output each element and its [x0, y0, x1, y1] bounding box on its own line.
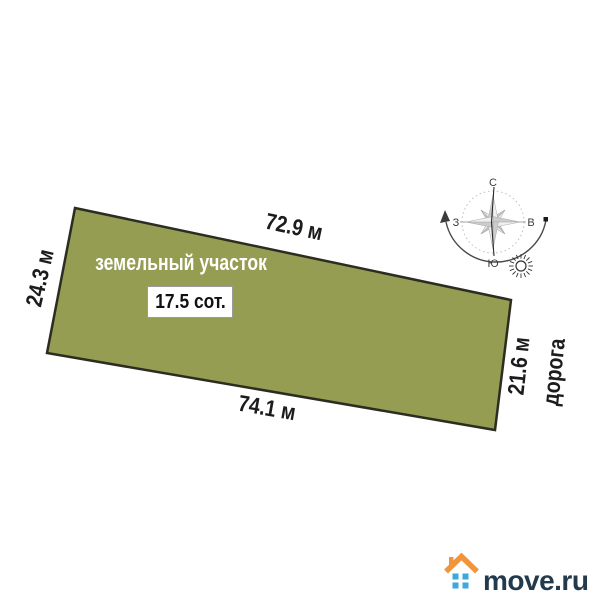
- compass-rose: С Ю З В: [453, 177, 535, 270]
- diagram-canvas: С Ю З В: [0, 0, 600, 600]
- compass-east-label: В: [527, 217, 534, 229]
- area-label: 17.5 сот.: [155, 292, 225, 312]
- compass-north-label: С: [489, 177, 497, 189]
- sun-icon: [509, 254, 533, 278]
- plot-diagram: С Ю З В 72.9 м 24.3 м 74.1 м 21.6 м доро…: [0, 0, 600, 600]
- right-width-label: 21.6 м: [505, 336, 534, 396]
- arc-arrowhead: [440, 210, 450, 223]
- logo-text: move.ru: [483, 567, 588, 595]
- compass-south-label: Ю: [487, 258, 498, 270]
- logo-windows: [453, 574, 469, 589]
- plot-title: земельный участок: [95, 252, 267, 274]
- arc-start-marker: [544, 217, 549, 222]
- house-logo-icon: [443, 551, 487, 597]
- move-logo[interactable]: move.ru: [443, 551, 593, 597]
- area-badge: 17.5 сот.: [147, 286, 233, 318]
- compass-west-label: З: [453, 217, 460, 229]
